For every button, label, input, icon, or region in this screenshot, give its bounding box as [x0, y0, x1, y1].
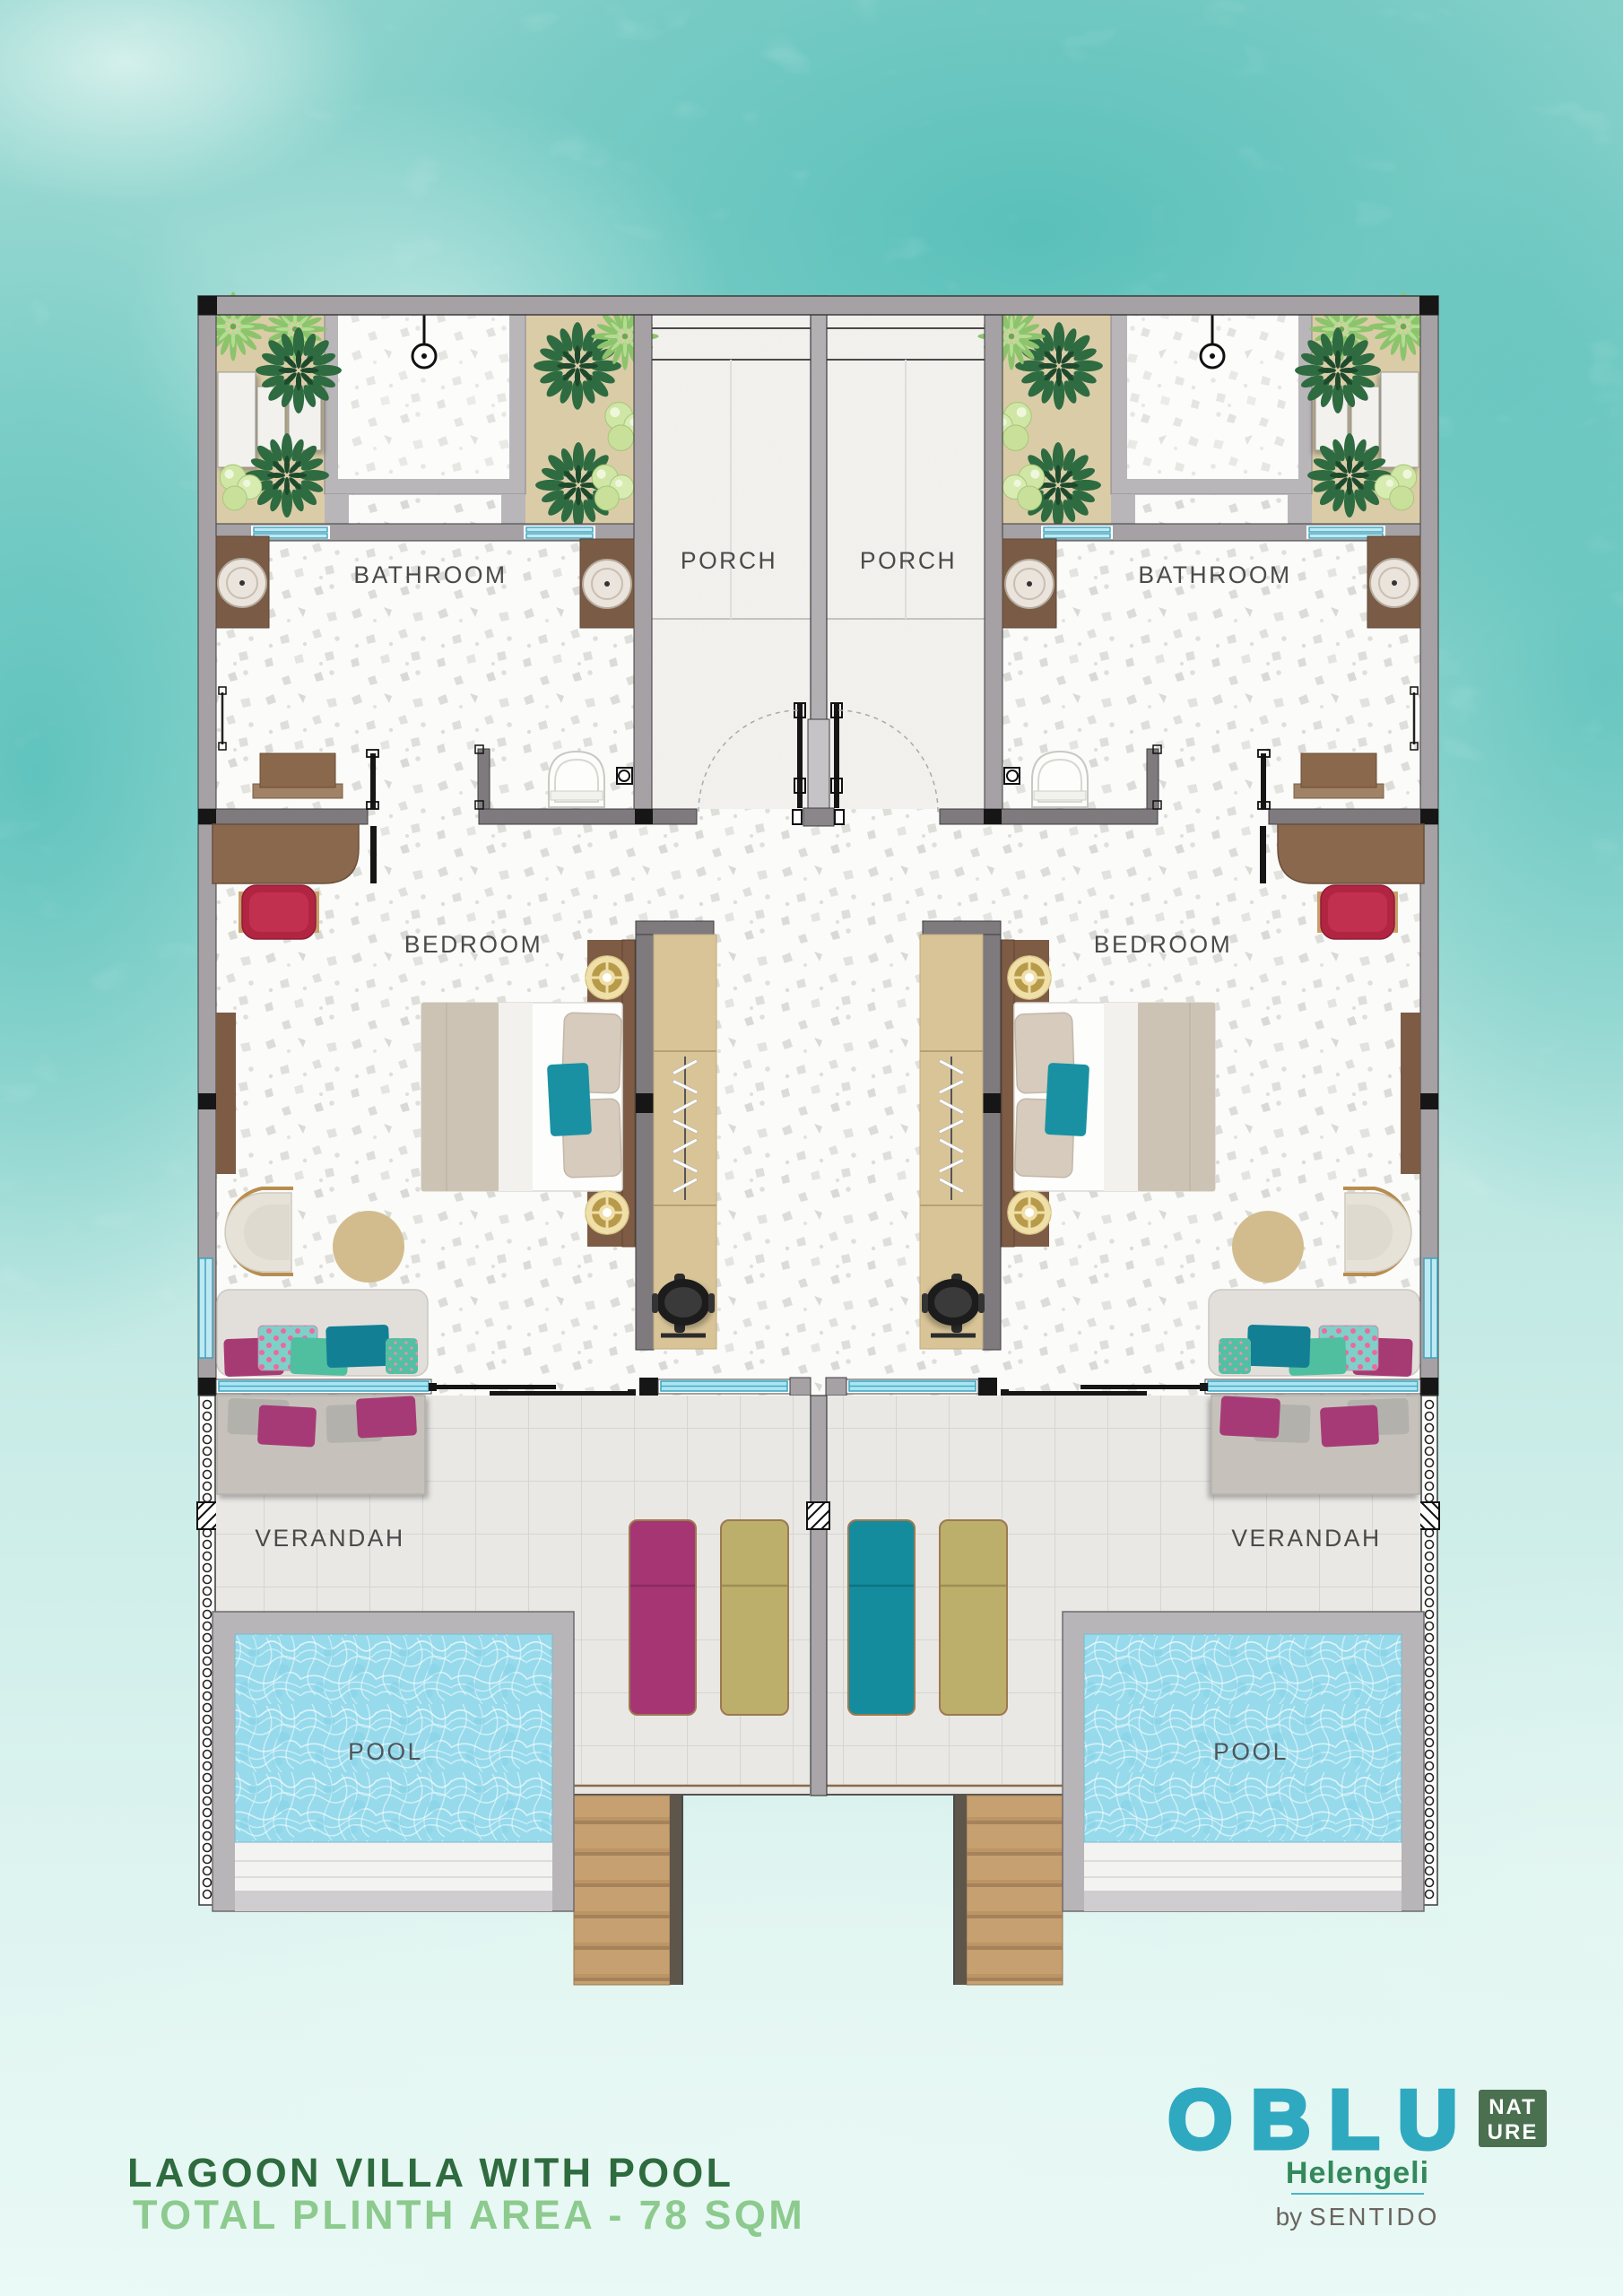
svg-text:URE: URE [1488, 2120, 1539, 2144]
svg-text:Helengeli: Helengeli [1286, 2156, 1429, 2190]
svg-text:TOTAL PLINTH AREA - 78 SQM: TOTAL PLINTH AREA - 78 SQM [133, 2192, 805, 2238]
svg-text:PORCH: PORCH [681, 547, 777, 574]
svg-text:BATHROOM: BATHROOM [1138, 561, 1291, 588]
svg-text:NAT: NAT [1488, 2095, 1537, 2119]
svg-text:BEDROOM: BEDROOM [404, 931, 542, 958]
svg-text:by SENTIDO: by SENTIDO [1276, 2203, 1440, 2231]
svg-text:LAGOON VILLA WITH POOL: LAGOON VILLA WITH POOL [127, 2150, 733, 2196]
svg-text:OBLU: OBLU [1167, 2073, 1475, 2166]
svg-text:PORCH: PORCH [860, 547, 957, 574]
svg-text:VERANDAH: VERANDAH [255, 1525, 404, 1552]
svg-text:POOL: POOL [1213, 1738, 1289, 1765]
svg-text:POOL: POOL [348, 1738, 423, 1765]
svg-text:BATHROOM: BATHROOM [353, 561, 507, 588]
svg-text:BEDROOM: BEDROOM [1094, 931, 1232, 958]
svg-text:VERANDAH: VERANDAH [1231, 1525, 1381, 1552]
